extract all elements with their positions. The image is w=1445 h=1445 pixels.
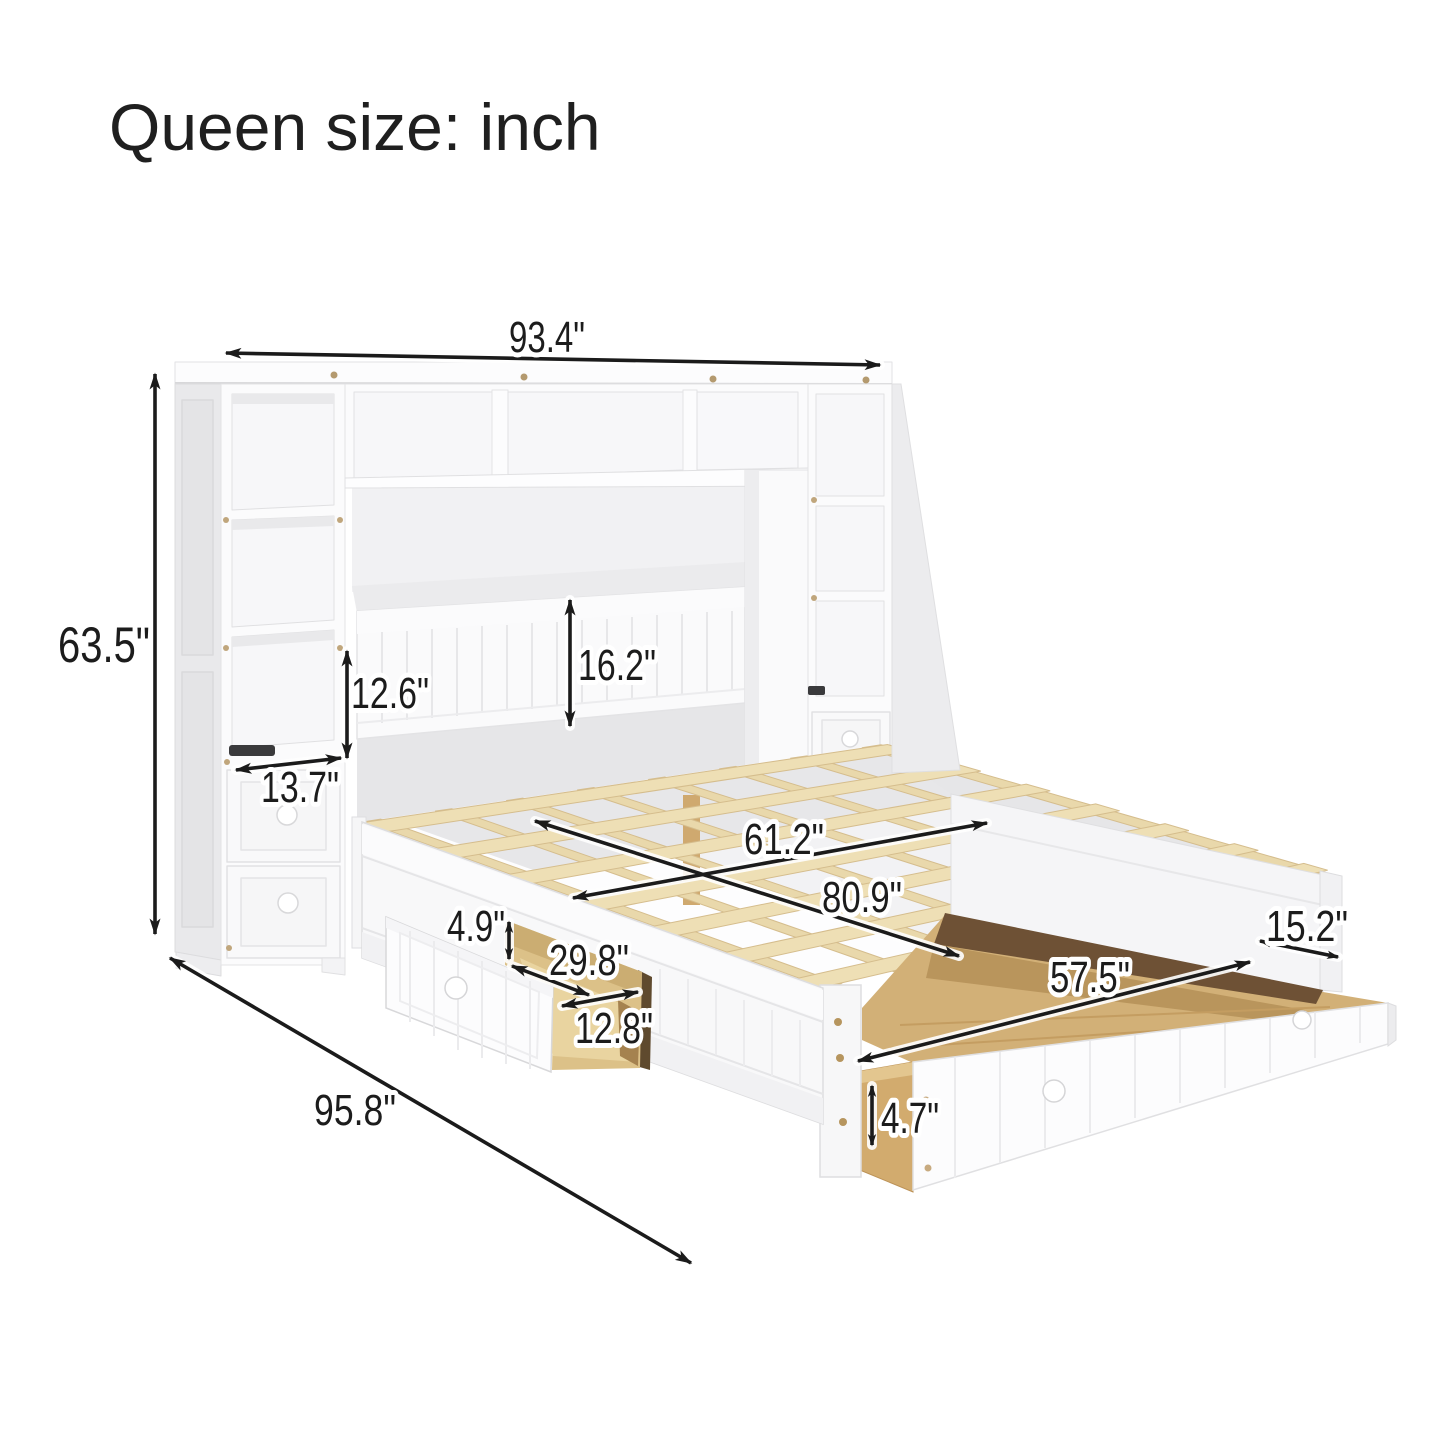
svg-text:93.4": 93.4"	[509, 313, 585, 362]
svg-text:12.6": 12.6"	[351, 669, 429, 718]
svg-text:4.7": 4.7"	[881, 1094, 939, 1143]
svg-text:95.8": 95.8"	[314, 1086, 396, 1135]
svg-text:80.9": 80.9"	[822, 873, 902, 922]
svg-text:29.8": 29.8"	[549, 936, 629, 985]
svg-text:Queen size: inch: Queen size: inch	[109, 90, 601, 164]
svg-text:12.8": 12.8"	[575, 1004, 653, 1053]
svg-text:4.9": 4.9"	[447, 902, 505, 951]
svg-text:63.5": 63.5"	[58, 617, 150, 673]
svg-text:57.5": 57.5"	[1050, 953, 1130, 1002]
svg-text:13.7": 13.7"	[261, 763, 339, 812]
svg-text:16.2": 16.2"	[578, 641, 656, 690]
svg-text:15.2": 15.2"	[1266, 902, 1348, 951]
svg-text:61.2": 61.2"	[744, 815, 824, 864]
